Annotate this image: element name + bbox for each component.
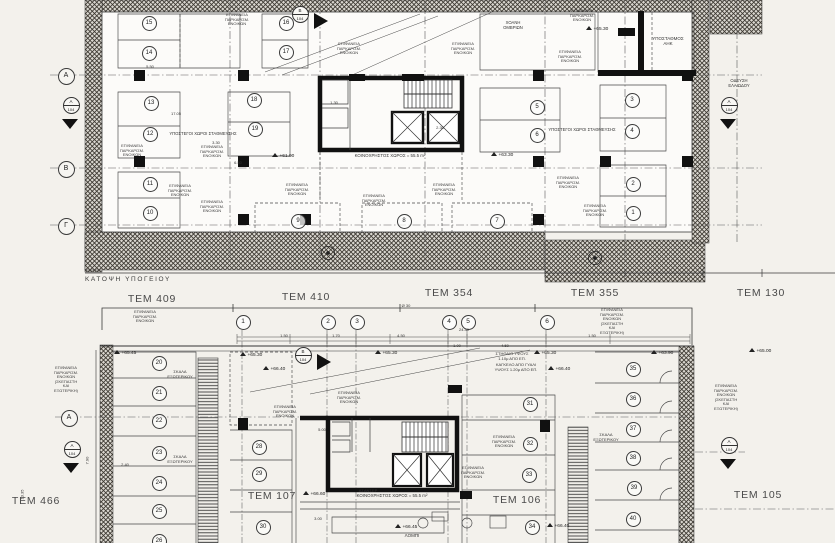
dimension-label: 24.30 bbox=[459, 327, 469, 332]
elevation-label: +65.45 bbox=[114, 350, 136, 356]
room-label: ΚΑΓΚΕΛΟ ΑΠΟ ΓΥΑΛΙ ΥΨΟΥΣ 1.20μ ΑΠΟ ΕΠ. bbox=[495, 363, 538, 372]
parking-note-extended: ΕΠΙΦΑΝΕΙΑ ΠΑΡΚΑΡΙΣΜ. ΕΝΟΙΚΩΝ (ΣΚΕΠΑΣΤΗ Κ… bbox=[600, 308, 624, 336]
grid-bubble-letter: Γ bbox=[58, 218, 75, 235]
stall-number: 4 bbox=[625, 124, 640, 139]
elevation-label: +65.30 bbox=[534, 350, 556, 356]
elevation-flag-icon bbox=[240, 352, 246, 356]
elevation-flag-icon bbox=[491, 152, 497, 156]
stall-number: 23 bbox=[152, 446, 167, 461]
elevation-label: +65.30 bbox=[240, 352, 262, 358]
elevation-flag-icon bbox=[534, 350, 540, 354]
parcel-label: TEM 105 bbox=[734, 489, 782, 501]
parcel-label: TEM 354 bbox=[425, 287, 473, 299]
parcel-label: TEM 355 bbox=[571, 287, 619, 299]
elevation-label: +66.40 bbox=[547, 523, 569, 529]
room-label: ΑΣΑΝΣΕΡ bbox=[359, 489, 378, 494]
section-marker: A104 bbox=[721, 97, 738, 114]
parking-note: ΕΠΙΦΑΝΕΙΑ ΠΑΡΚΑΡΙΣΜ. ΕΝΟΙΚΩΝ bbox=[570, 9, 594, 23]
stall-number: 3 bbox=[625, 93, 640, 108]
stall-number: 36 bbox=[626, 392, 641, 407]
stall-number: 10 bbox=[143, 206, 158, 221]
dimension-label: 1.50 bbox=[280, 333, 288, 338]
stall-number: 13 bbox=[144, 96, 159, 111]
room-label: ΚΟΙΝΟΧΡΗΣΤΟΣ ΧΩΡΟΣ = 55.5 m² bbox=[357, 493, 428, 498]
section-marker: B104 bbox=[292, 6, 309, 23]
elevation-label: +66.45 bbox=[395, 524, 417, 530]
stall-number: 17 bbox=[279, 45, 294, 60]
drawing-sheet: ΚΑΤΟΨΗ ΥΠΟΓΕΙΟΥ TEM 409TEM 410TEM 354TEM… bbox=[0, 0, 835, 543]
section-marker: A104 bbox=[721, 437, 738, 454]
stall-number: 11 bbox=[143, 177, 158, 192]
dimension-label: 13.35 bbox=[20, 489, 25, 499]
dimension-label: 1.30 bbox=[330, 100, 338, 105]
parking-note-extended: ΕΠΙΦΑΝΕΙΑ ΠΑΡΚΑΡΙΣΜ. ΕΝΟΙΚΩΝ (ΣΚΕΠΑΣΤΗ Κ… bbox=[714, 384, 738, 412]
parking-note: ΕΠΙΦΑΝΕΙΑ ΠΑΡΚΑΡΙΣΜ. ΕΝΟΙΚΩΝ bbox=[120, 144, 144, 158]
room-label: ΟΔΕΥΣΗ ΕΛΑΙΩΔΟΥ bbox=[728, 79, 749, 89]
section-marker: A104 bbox=[64, 441, 81, 458]
parking-note: ΕΠΙΦΑΝΕΙΑ ΠΑΡΚΑΡΙΣΜ. ΕΝΟΙΚΩΝ bbox=[558, 50, 582, 64]
room-label: ΥΠΟΣΤΕΓΟΙ ΧΩΡΟΙ ΣΤΑΘΜΕΥΣΗΣ bbox=[169, 132, 236, 137]
room-label: ΣΚΑΛΑ ΕΞΩΤΕΡΙΚΟΥ bbox=[167, 370, 192, 379]
parking-note: ΕΠΙΦΑΝΕΙΑ ΠΑΡΚΑΡΙΣΜ. ΕΝΟΙΚΩΝ bbox=[200, 200, 224, 214]
elevation-flag-icon bbox=[547, 523, 553, 527]
room-label: ΣΚΑΛΑ ΕΞΩΤΕΡΙΚΟΥ bbox=[593, 433, 618, 442]
parcel-label: TEM 410 bbox=[282, 291, 330, 303]
stall-number: 20 bbox=[152, 356, 167, 371]
dimension-label: 3.30 bbox=[212, 140, 220, 145]
elevation-label: +66.40 bbox=[548, 366, 570, 372]
parking-note: ΕΠΙΦΑΝΕΙΑ ΠΑΡΚΑΡΙΣΜ. ΕΝΟΙΚΩΝ bbox=[133, 310, 157, 324]
parking-note-extended: ΕΠΙΦΑΝΕΙΑ ΠΑΡΚΑΡΙΣΜ. ΕΝΟΙΚΩΝ (ΣΚΕΠΑΣΤΗ Κ… bbox=[54, 366, 78, 394]
stall-number: 15 bbox=[142, 16, 157, 31]
stall-number: 8 bbox=[397, 214, 412, 229]
stall-number: 12 bbox=[143, 127, 158, 142]
stall-number: 22 bbox=[152, 414, 167, 429]
dimension-label: 6.50 bbox=[234, 160, 242, 165]
dimension-label: 5.50 bbox=[146, 64, 154, 69]
grid-bubble-number: 2 bbox=[321, 315, 336, 330]
elevation-flag-icon bbox=[272, 153, 278, 157]
parcel-label: TEM 106 bbox=[493, 494, 541, 506]
grid-bubble-letter: A bbox=[58, 68, 75, 85]
dimension-label: 4.50 bbox=[501, 343, 509, 348]
dimension-label: 1.50 bbox=[588, 333, 596, 338]
stall-number: 35 bbox=[626, 362, 641, 377]
stall-number: 25 bbox=[152, 504, 167, 519]
parking-note: ΕΠΙΦΑΝΕΙΑ ΠΑΡΚΑΡΙΣΜ. ΕΝΟΙΚΩΝ bbox=[337, 391, 361, 405]
grid-bubble-letter: A bbox=[61, 410, 78, 427]
parking-note: ΕΠΙΦΑΝΕΙΑ ΠΑΡΚΑΡΙΣΜ. ΕΝΟΙΚΩΝ bbox=[583, 204, 607, 218]
elevation-flag-icon bbox=[375, 350, 381, 354]
room-label: ΚΟΙΝΟΧΡΗΣΤΟΣ ΧΩΡΟΣ = 55.5 m² bbox=[355, 153, 426, 158]
elevation-flag-icon bbox=[548, 366, 554, 370]
room-label: ΛΟΜΠΙ bbox=[405, 533, 420, 538]
elevation-label: +63.90 bbox=[651, 350, 673, 356]
stall-number: 30 bbox=[256, 520, 271, 535]
grid-bubble-number: 6 bbox=[540, 315, 555, 330]
parcel-label: TEM 409 bbox=[128, 293, 176, 305]
room-label: ΥΠΟΣΤΑΘΜΟΣ ΑΗΚ bbox=[652, 36, 683, 46]
room-label: ΧΟΑΝΗ ΟΜΒΡΙΩΝ bbox=[503, 21, 523, 31]
parking-note: ΕΠΙΦΑΝΕΙΑ ΠΑΡΚΑΡΙΣΜ. ΕΝΟΙΚΩΝ bbox=[362, 194, 386, 208]
stall-number: 39 bbox=[627, 481, 642, 496]
dimension-label: 3.00 bbox=[314, 516, 322, 521]
elevation-flag-icon bbox=[395, 524, 401, 528]
stall-number: 37 bbox=[626, 422, 641, 437]
stall-number: 33 bbox=[522, 468, 537, 483]
parking-note: ΕΠΙΦΑΝΕΙΑ ΠΑΡΚΑΡΙΣΜ. ΕΝΟΙΚΩΝ bbox=[492, 435, 516, 449]
stall-number: 21 bbox=[152, 386, 167, 401]
elevation-flag-icon bbox=[586, 26, 592, 30]
parking-note: ΕΠΙΦΑΝΕΙΑ ΠΑΡΚΑΡΙΣΜ. ΕΝΟΙΚΩΝ bbox=[285, 183, 309, 197]
dimension-label: 1.00 bbox=[453, 343, 461, 348]
stall-number: 2 bbox=[626, 177, 641, 192]
dimension-label: 7.90 bbox=[85, 457, 90, 465]
parking-note: ΕΠΙΦΑΝΕΙΑ ΠΑΡΚΑΡΙΣΜ. ΕΝΟΙΚΩΝ bbox=[556, 176, 580, 190]
stall-number: 34 bbox=[525, 520, 540, 535]
dimension-label: Ø 30 bbox=[402, 303, 411, 308]
elevation-flag-icon bbox=[114, 350, 120, 354]
dimension-label: 5.00 bbox=[318, 427, 326, 432]
stall-number: 28 bbox=[252, 440, 267, 455]
stall-number: 14 bbox=[142, 46, 157, 61]
stall-number: 7 bbox=[490, 214, 505, 229]
stall-number: 40 bbox=[626, 512, 641, 527]
elevation-label: +65.30 bbox=[586, 26, 608, 32]
elevation-flag-icon bbox=[263, 366, 269, 370]
stall-number: 9 bbox=[291, 214, 306, 229]
elevation-flag-icon bbox=[303, 491, 309, 495]
parcel-label: TEM 107 bbox=[248, 490, 296, 502]
stall-number: 31 bbox=[523, 397, 538, 412]
parking-note: ΕΠΙΦΑΝΕΙΑ ΠΑΡΚΑΡΙΣΜ. ΕΝΟΙΚΩΝ bbox=[200, 145, 224, 159]
stall-number: 5 bbox=[530, 100, 545, 115]
grid-bubble-letter: B bbox=[58, 161, 75, 178]
stall-number: 6 bbox=[530, 128, 545, 143]
dimension-label: 2.40 bbox=[121, 462, 129, 467]
room-label: ΥΠΟΣΤΕΓΟΙ ΧΩΡΟΙ ΣΤΑΘΜΕΥΣΗΣ bbox=[548, 128, 615, 133]
elevation-label: +61.90 bbox=[272, 153, 294, 159]
parking-note: ΕΠΙΦΑΝΕΙΑ ΠΑΡΚΑΡΙΣΜ. ΕΝΟΙΚΩΝ bbox=[337, 42, 361, 56]
parking-note: ΕΠΙΦΑΝΕΙΑ ΠΑΡΚΑΡΙΣΜ. ΕΝΟΙΚΩΝ bbox=[168, 184, 192, 198]
parking-note: ΕΠΙΦΑΝΕΙΑ ΠΑΡΚΑΡΙΣΜ. ΕΝΟΙΚΩΝ bbox=[273, 405, 297, 419]
stall-number: 1 bbox=[626, 206, 641, 221]
dimension-label: 4.50 bbox=[397, 333, 405, 338]
stall-number: 26 bbox=[152, 534, 167, 543]
elevation-label: +65.00 bbox=[749, 348, 771, 354]
stall-number: 19 bbox=[248, 122, 263, 137]
elevation-flag-icon bbox=[749, 348, 755, 352]
elevation-label: +66.40 bbox=[263, 366, 285, 372]
parking-note: ΕΠΙΦΑΝΕΙΑ ΠΑΡΚΑΡΙΣΜ. ΕΝΟΙΚΩΝ bbox=[461, 466, 485, 480]
section-marker: B104 bbox=[295, 347, 312, 364]
stall-number: 38 bbox=[626, 451, 641, 466]
stall-number: 24 bbox=[152, 476, 167, 491]
room-label: ΣΚΑΛΑ ΕΞΩΤΕΡΙΚΟΥ bbox=[167, 455, 192, 464]
grid-bubble-number: 1 bbox=[236, 315, 251, 330]
labels-layer: ΚΑΤΟΨΗ ΥΠΟΓΕΙΟΥ TEM 409TEM 410TEM 354TEM… bbox=[0, 0, 835, 543]
elevation-flag-icon bbox=[651, 350, 657, 354]
dimension-label: 17.05 bbox=[171, 111, 181, 116]
section-marker: A104 bbox=[63, 97, 80, 114]
elevation-label: +63.30 bbox=[491, 152, 513, 158]
parcel-label: TEM 130 bbox=[737, 287, 785, 299]
parking-note: ΕΠΙΦΑΝΕΙΑ ΠΑΡΚΑΡΙΣΜ. ΕΝΟΙΚΩΝ bbox=[225, 13, 249, 27]
dimension-label: 2.30 bbox=[436, 125, 444, 130]
dimension-label: 1.70 bbox=[332, 333, 340, 338]
stall-number: 29 bbox=[252, 467, 267, 482]
grid-bubble-number: 4 bbox=[442, 315, 457, 330]
parking-note: ΕΠΙΦΑΝΕΙΑ ΠΑΡΚΑΡΙΣΜ. ΕΝΟΙΚΩΝ bbox=[451, 42, 475, 56]
room-label: ΣΤΗΘΑΙΟ ΥΨΟΥΣ 1.10μ ΑΠΟ ΕΠ. bbox=[496, 352, 529, 361]
basement-plan-caption: ΚΑΤΟΨΗ ΥΠΟΓΕΙΟΥ bbox=[85, 276, 171, 283]
parking-note: ΕΠΙΦΑΝΕΙΑ ΠΑΡΚΑΡΙΣΜ. ΕΝΟΙΚΩΝ bbox=[432, 183, 456, 197]
stall-number: 16 bbox=[279, 16, 294, 31]
elevation-label: +65.30 bbox=[375, 350, 397, 356]
grid-bubble-number: 3 bbox=[350, 315, 365, 330]
stall-number: 32 bbox=[523, 437, 538, 452]
elevation-label: +66.60 bbox=[303, 491, 325, 497]
stall-number: 18 bbox=[247, 93, 262, 108]
